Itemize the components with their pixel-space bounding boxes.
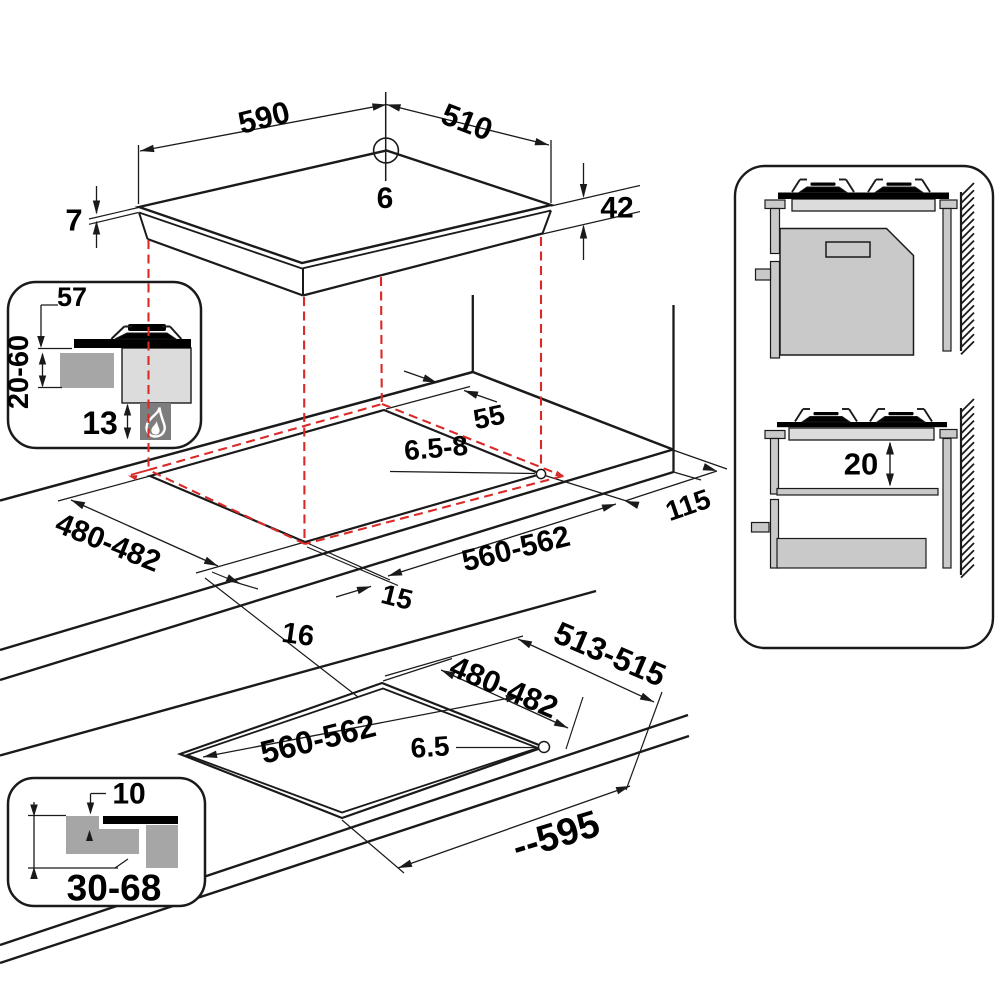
svg-text:6: 6 <box>377 182 394 215</box>
svg-text:6.5: 6.5 <box>409 730 450 764</box>
svg-text:510: 510 <box>437 96 498 147</box>
svg-text:13: 13 <box>82 405 118 441</box>
svg-text:6.5-8: 6.5-8 <box>403 430 469 466</box>
svg-text:--595: --595 <box>507 803 604 869</box>
svg-text:115: 115 <box>662 483 715 527</box>
svg-text:55: 55 <box>471 399 508 436</box>
svg-text:20-60: 20-60 <box>3 335 35 409</box>
svg-text:42: 42 <box>600 192 633 225</box>
svg-text:57: 57 <box>57 282 87 312</box>
svg-text:10: 10 <box>112 778 145 811</box>
svg-text:560-562: 560-562 <box>459 520 574 579</box>
svg-text:20: 20 <box>844 447 878 482</box>
svg-text:16: 16 <box>280 617 316 653</box>
svg-text:30-68: 30-68 <box>67 868 162 909</box>
svg-text:7: 7 <box>65 203 82 238</box>
svg-text:560-562: 560-562 <box>257 707 380 770</box>
svg-text:480-482: 480-482 <box>51 507 165 579</box>
svg-text:15: 15 <box>378 578 416 616</box>
svg-text:590: 590 <box>235 94 294 140</box>
